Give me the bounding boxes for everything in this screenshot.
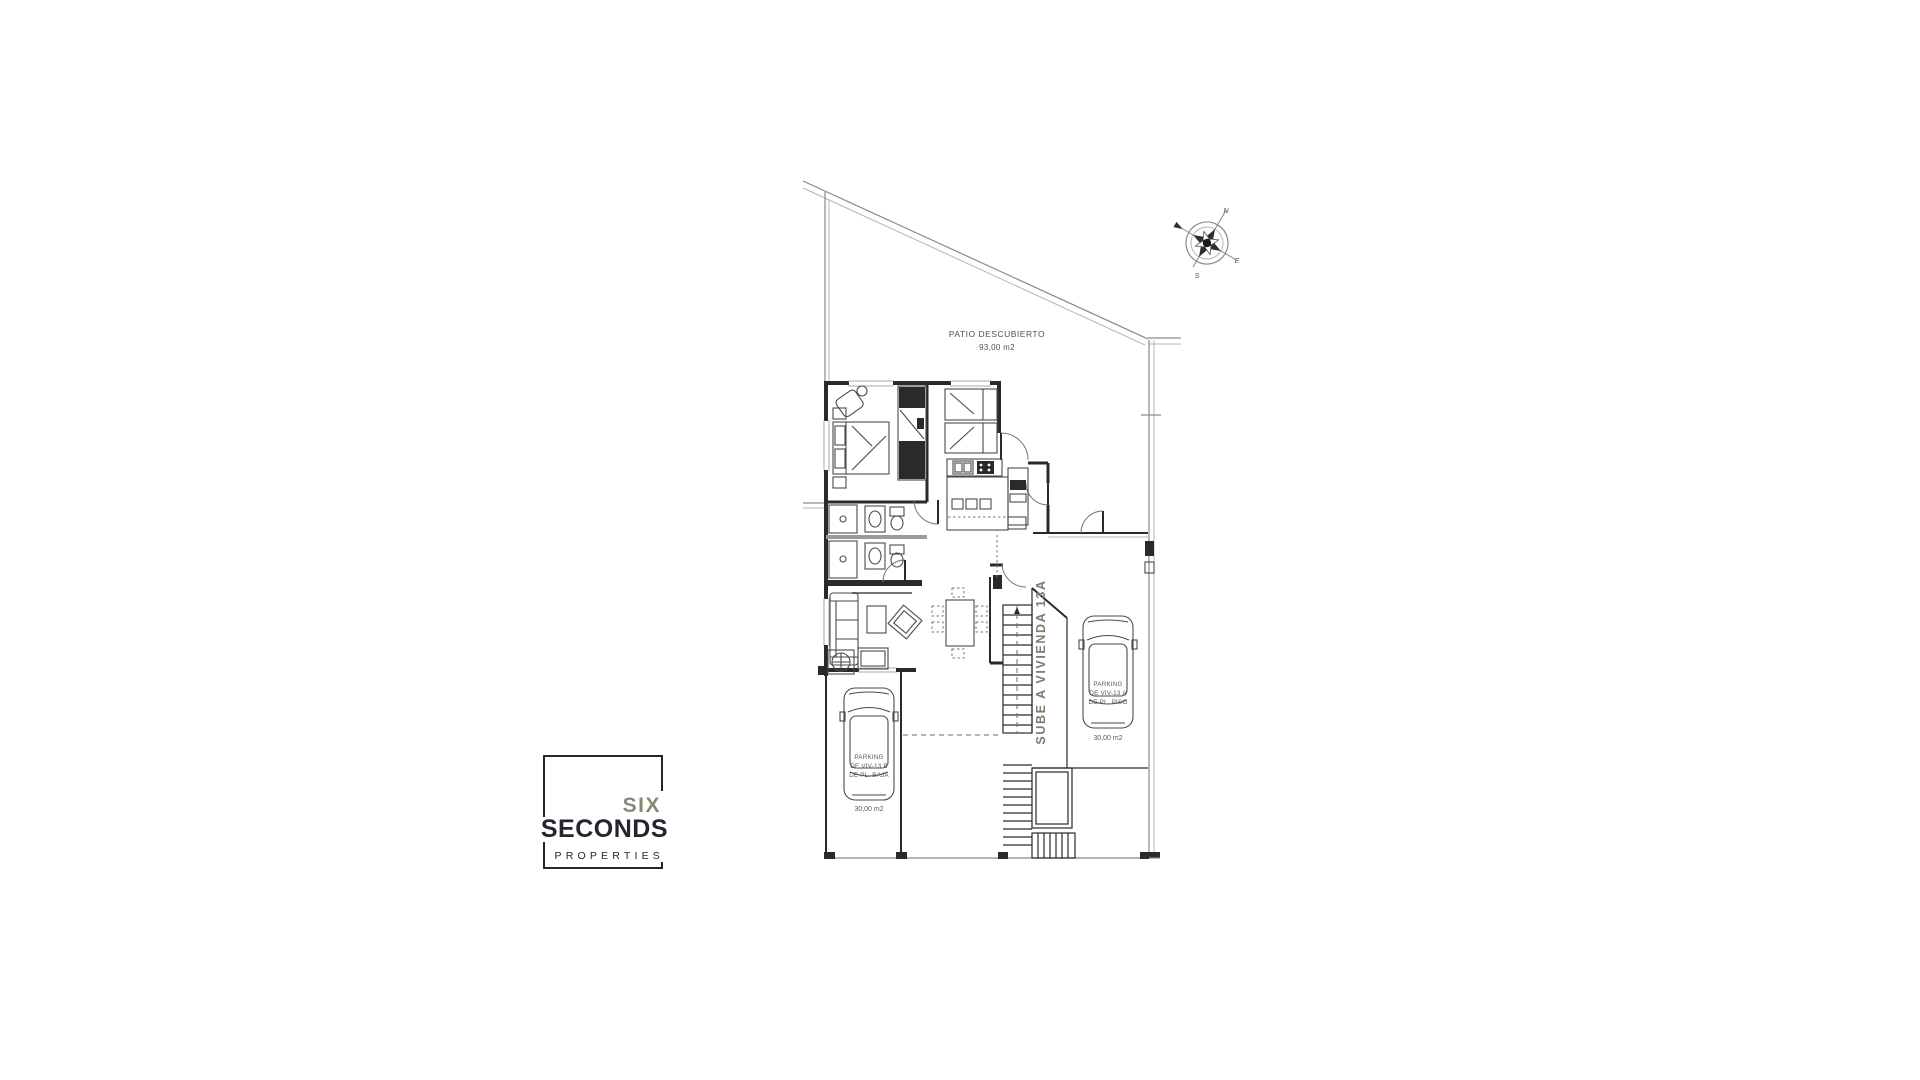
logo-frame-right-bottom: [661, 862, 664, 869]
logo-properties-text: PROPERTIES: [555, 851, 665, 862]
compass-south-label: S: [1195, 273, 1200, 280]
bedroom-1: [833, 386, 889, 488]
floorplan-page: PATIO DESCUBIERTO 93,00 m2 SUBE A VIVIEN…: [0, 0, 1920, 1080]
stairs-label: SUBE A VIVIENDA 13A: [1034, 579, 1048, 744]
parking-right-line3: DE PL. PISO: [1089, 699, 1128, 706]
logo-six-text: SIX: [623, 795, 661, 816]
compass-north-label: N: [1223, 208, 1229, 215]
kitchen: [947, 459, 1028, 530]
logo-frame-right-top: [661, 755, 664, 791]
parking-right-area: 30,00 m2: [1093, 735, 1122, 742]
patio-area: 93,00 m2: [979, 343, 1015, 352]
logo-seconds-text: SECONDS: [538, 817, 668, 842]
compass-west-marker: [1173, 222, 1184, 232]
plan-labels: PATIO DESCUBIERTO 93,00 m2 SUBE A VIVIEN…: [849, 329, 1127, 813]
bedroom-2: [945, 389, 997, 453]
compass-east-label: E: [1235, 258, 1240, 265]
parking-left-area: 30,00 m2: [854, 806, 883, 813]
compass-rose: N E S: [1161, 192, 1255, 285]
six-seconds-logo: SIX SECONDS PROPERTIES: [543, 755, 663, 869]
parking-right-line1: PARKING: [1093, 681, 1122, 688]
living-room: [828, 588, 987, 674]
parking-right-line2: DE VIV-13 A: [1089, 690, 1127, 697]
bathrooms: [829, 505, 904, 578]
parking-left-line2: DE VIV-13 B: [850, 763, 888, 770]
patio-label: PATIO DESCUBIERTO: [949, 329, 1045, 339]
car-left: [840, 688, 898, 800]
car-right: [1079, 616, 1137, 728]
wardrobe: [898, 386, 926, 480]
parking-left-line3: DE PL. BAJA: [849, 772, 889, 779]
floorplan-drawing: PATIO DESCUBIERTO 93,00 m2 SUBE A VIVIEN…: [0, 0, 1920, 1080]
parking-left-line1: PARKING: [854, 754, 883, 761]
